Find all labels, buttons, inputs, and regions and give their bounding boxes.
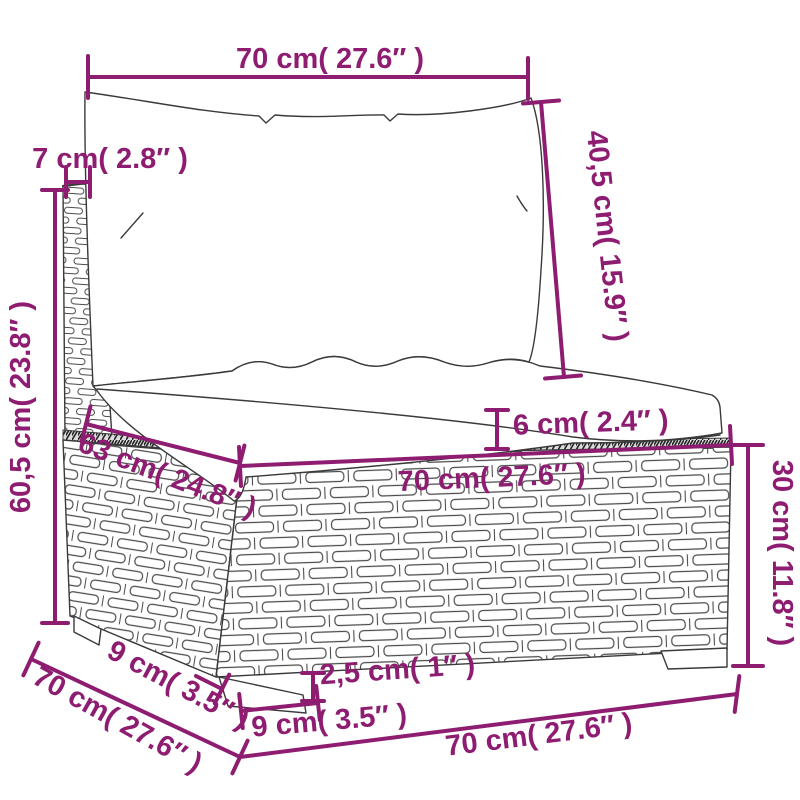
- sofa-dimension-drawing: 70 cm( 27.6″ ) 40,5 cm( 15.9″ ) 7 cm( 2.…: [0, 0, 800, 800]
- dim-line-base-height: [733, 445, 763, 666]
- back-cushion: [85, 92, 543, 386]
- dim-label-panel-width: 7 cm( 2.8″ ): [32, 143, 188, 175]
- dim-label-total-height: 60,5 cm( 23.8″ ): [5, 301, 37, 513]
- dim-label-top-width: 70 cm( 27.6″ ): [236, 43, 424, 75]
- dimension-diagram: 70 cm( 27.6″ ) 40,5 cm( 15.9″ ) 7 cm( 2.…: [0, 0, 800, 800]
- dim-label-bottom-width: 70 cm( 27.6″ ): [444, 707, 635, 762]
- dim-label-back-height: 40,5 cm( 15.9″ ): [580, 129, 634, 343]
- dim-label-cushion-thickness: 6 cm( 2.4″ ): [512, 404, 669, 441]
- dim-label-base-height: 30 cm( 11.8″ ): [766, 460, 798, 646]
- foot-front-right: [661, 648, 727, 669]
